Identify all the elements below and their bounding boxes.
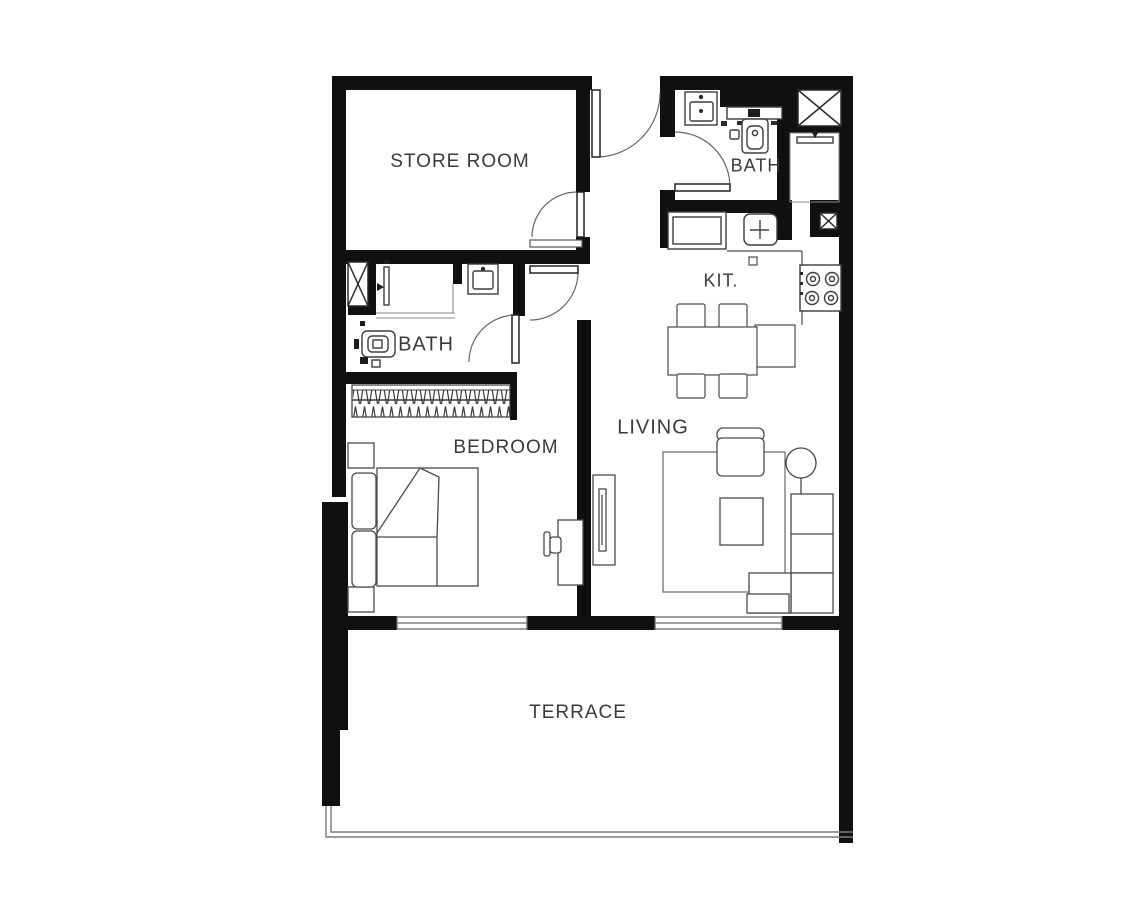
- coffee-table: [720, 498, 763, 545]
- wardrobe: [352, 385, 510, 417]
- walls: [322, 76, 853, 843]
- bedroom-furniture: [348, 443, 583, 612]
- floor-plan-drawing: [0, 0, 1142, 918]
- room-label-living: LIVING: [617, 417, 689, 440]
- living-window: [655, 617, 782, 629]
- stove: [800, 265, 841, 311]
- room-label-bath-left: BATH: [398, 334, 454, 357]
- tv-unit: [593, 475, 615, 565]
- wall-shaft-left-bottom: [348, 306, 376, 315]
- armchair: [717, 428, 764, 476]
- nightstand-top: [348, 443, 374, 468]
- wall-bath-top-left-upper: [660, 90, 675, 137]
- pillow: [352, 531, 376, 587]
- dining-chair: [719, 304, 747, 328]
- floor-plan: STORE ROOM BATH KIT. BATH BEDROOM LIVING…: [0, 0, 1142, 918]
- wall-shower-left: [777, 107, 790, 202]
- wall-toilet-backing: [720, 76, 782, 107]
- store-room-door: [530, 192, 584, 247]
- room-label-bedroom: BEDROOM: [453, 437, 558, 459]
- fridge: [668, 212, 726, 249]
- shower-head-left: [377, 260, 389, 305]
- nightstand-bottom: [348, 587, 374, 612]
- kitchen-sink: [744, 214, 777, 245]
- shaft-kitchen-small: [820, 213, 837, 229]
- wall-terrace-right: [839, 630, 853, 843]
- wall-bottom-seg2: [527, 616, 655, 630]
- shaft-left: [348, 262, 368, 306]
- floor-lamp: [786, 448, 816, 494]
- toilet-left: [354, 321, 395, 367]
- lower-cabinet: [755, 325, 795, 367]
- wall-left: [332, 76, 346, 497]
- pillow: [352, 473, 376, 529]
- dining-set: [668, 304, 757, 398]
- wall-bottom-seg3: [782, 616, 852, 630]
- wall-top-left: [332, 76, 592, 90]
- terrace-railing: [326, 806, 853, 837]
- wall-store-right-upper: [576, 90, 590, 192]
- wall-bath-left-right: [513, 264, 525, 316]
- shaft-top-right: [798, 90, 841, 126]
- wall-bath-left-bottom: [346, 372, 517, 384]
- shower: [790, 127, 839, 202]
- bathroom-sink: [685, 92, 717, 125]
- bedroom-window: [397, 617, 527, 629]
- entrance-door: [592, 90, 660, 157]
- room-label-kitchen: KIT.: [703, 271, 738, 292]
- wall-right: [839, 76, 853, 630]
- wall-shower-stub-left-bath: [453, 264, 462, 284]
- wall-terrace-left-upper: [322, 502, 348, 730]
- corridor-door: [530, 266, 578, 320]
- desk: [558, 520, 583, 585]
- dining-chair: [719, 374, 747, 398]
- bath-top-door: [675, 132, 730, 191]
- living-furniture: [593, 428, 833, 613]
- wall-terrace-left-lower: [322, 730, 340, 806]
- dining-table: [668, 327, 757, 375]
- dining-chair: [677, 374, 705, 398]
- wall-bottom-seg1: [345, 616, 397, 630]
- toilet: [721, 119, 777, 153]
- room-label-store-room: STORE ROOM: [390, 151, 530, 173]
- wall-shaft-left-side: [368, 262, 376, 310]
- room-label-terrace: TERRACE: [529, 702, 627, 724]
- toilet-shelf: [727, 107, 782, 119]
- wall-wardrobe-right: [510, 372, 517, 420]
- room-label-bath-top: BATH: [731, 156, 782, 177]
- dining-chair: [677, 304, 705, 328]
- kitchen-fixtures: [668, 212, 841, 398]
- bathroom-sink-left: [468, 264, 498, 294]
- wall-store-bottom: [346, 250, 590, 264]
- bed: [352, 468, 478, 587]
- bath-left-door: [469, 315, 519, 363]
